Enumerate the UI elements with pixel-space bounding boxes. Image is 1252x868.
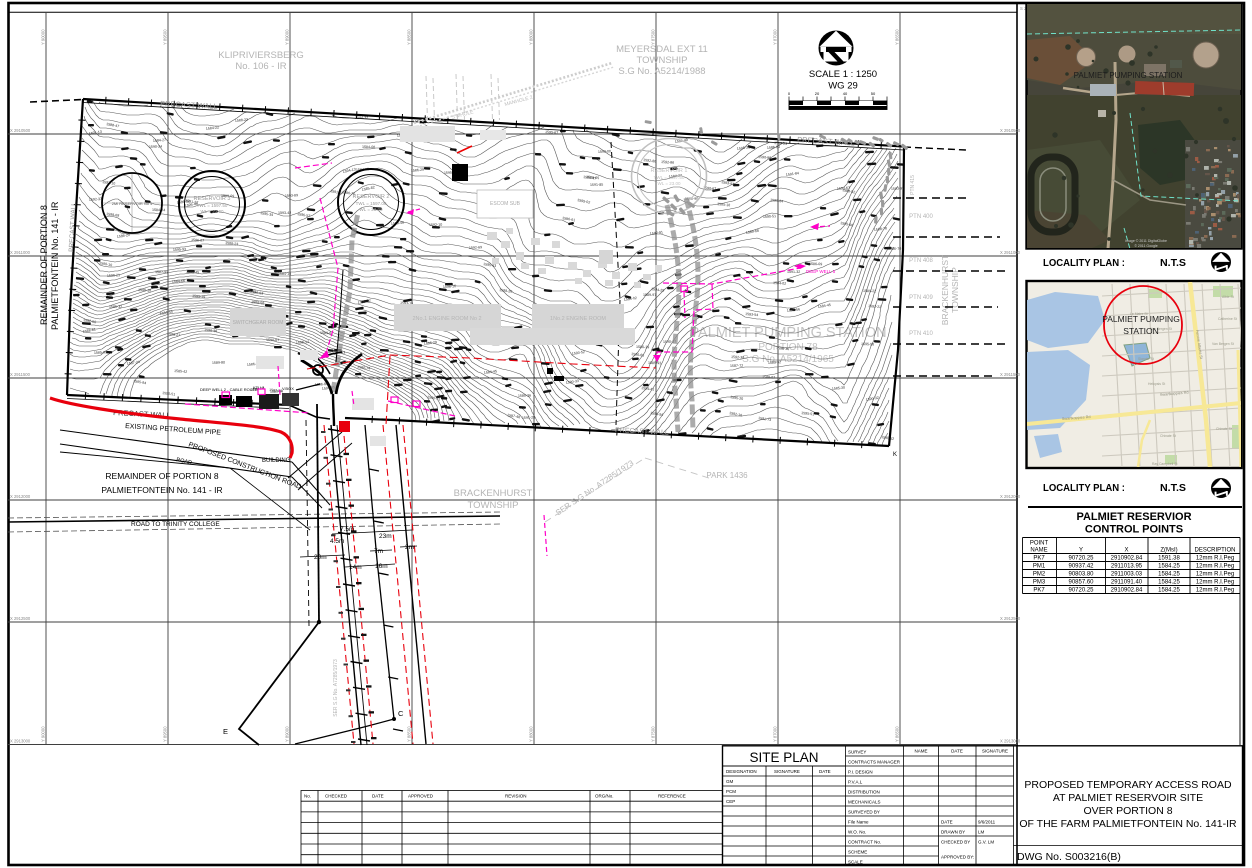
svg-text:SWITCHGEAR ROOM: SWITCHGEAR ROOM [233, 320, 284, 326]
svg-text:DATE: DATE [951, 749, 963, 754]
svg-text:N.T.S: N.T.S [1160, 257, 1186, 269]
svg-text:SIGNATURE: SIGNATURE [982, 749, 1008, 754]
svg-text:REMAINDER OF PORTION 8: REMAINDER OF PORTION 8 [39, 205, 49, 325]
svg-text:Y 90000: Y 90000 [41, 726, 46, 742]
svg-text:P.V.A.L: P.V.A.L [848, 780, 863, 785]
svg-text:1591.38: 1591.38 [1158, 556, 1180, 562]
svg-text:LOCALITY PLAN :: LOCALITY PLAN : [1043, 257, 1125, 269]
svg-text:No. 106 - IR: No. 106 - IR [235, 61, 286, 72]
svg-text:Y 87000: Y 87000 [773, 29, 778, 45]
svg-text:1584.25: 1584.25 [1158, 580, 1180, 586]
svg-text:Y 86500: Y 86500 [895, 29, 900, 45]
svg-text:PALMIETFONTEIN No. 141 - IR: PALMIETFONTEIN No. 141 - IR [50, 201, 60, 330]
svg-text:Y 90000: Y 90000 [41, 29, 46, 45]
svg-text:SER S.G No. A7285/1973: SER S.G No. A7285/1973 [333, 659, 339, 717]
svg-text:CHECKED BY: CHECKED BY [941, 840, 970, 845]
svg-text:X 2910500: X 2910500 [10, 128, 31, 133]
svg-text:1595-93: 1595-93 [173, 247, 186, 252]
svg-text:POINT: POINT [1030, 541, 1049, 547]
svg-text:Y 86500: Y 86500 [895, 726, 900, 742]
svg-text:E: E [223, 727, 228, 736]
svg-text:20m: 20m [314, 554, 327, 561]
svg-text:RESERVOIR 2: RESERVOIR 2 [353, 194, 390, 200]
svg-text:Z(MsI): Z(MsI) [1160, 548, 1177, 554]
svg-text:1592-30: 1592-30 [731, 355, 744, 360]
svg-text:X 2912000: X 2912000 [10, 494, 31, 499]
svg-text:Image © 2011 DigitalGlobe: Image © 2011 DigitalGlobe [1125, 239, 1167, 243]
svg-text:X 2912500: X 2912500 [10, 616, 31, 621]
svg-text:1589-80: 1589-80 [212, 361, 225, 365]
svg-text:X 2913000: X 2913000 [1000, 739, 1021, 744]
svg-text:1593-42: 1593-42 [278, 211, 291, 215]
svg-text:1593-97: 1593-97 [891, 187, 904, 191]
svg-text:PROPOSED TEMPORARY ACCESS ROAD: PROPOSED TEMPORARY ACCESS ROAD [1024, 779, 1232, 791]
svg-text:BUILDING: BUILDING [262, 458, 291, 464]
svg-text:PALMIET RESERVIOR: PALMIET RESERVIOR [1076, 511, 1191, 523]
svg-text:Albie St: Albie St [1222, 295, 1234, 299]
svg-text:TWL = 1597.50: TWL = 1597.50 [654, 175, 685, 180]
svg-text:X 2911000: X 2911000 [1000, 250, 1021, 255]
svg-text:1584-34: 1584-34 [152, 208, 165, 212]
svg-text:12mm R.I.Peg: 12mm R.I.Peg [1196, 588, 1234, 594]
svg-text:90720.25: 90720.25 [1068, 556, 1094, 562]
svg-text:TWL = 1597.50: TWL = 1597.50 [197, 203, 228, 208]
svg-text:1589-22: 1589-22 [863, 289, 876, 293]
svg-text:No.: No. [304, 794, 311, 799]
svg-text:1587-93: 1587-93 [155, 270, 168, 274]
svg-text:RESERVOIR 1: RESERVOIR 1 [651, 168, 688, 174]
svg-text:S.G No. A5214/1965: S.G No. A5214/1965 [742, 354, 834, 365]
svg-text:1592-10: 1592-10 [429, 223, 442, 227]
svg-text:DEEP WELL 2 - CABLE ROUTE: DEEP WELL 2 - CABLE ROUTE [200, 387, 258, 392]
svg-text:X 2910500: X 2910500 [1000, 128, 1021, 133]
svg-text:SCHEME: SCHEME [848, 850, 867, 855]
svg-text:1592-69: 1592-69 [469, 245, 482, 250]
svg-text:PTN 410: PTN 410 [909, 331, 933, 337]
svg-text:BRACKENHURST: BRACKENHURST [940, 255, 950, 325]
svg-text:WL = 23.00: WL = 23.00 [360, 207, 383, 212]
svg-text:12mm R.I.Peg: 12mm R.I.Peg [1196, 580, 1234, 586]
svg-text:TOWNSHIP: TOWNSHIP [467, 500, 518, 511]
svg-text:LM: LM [978, 830, 985, 835]
svg-text:23m: 23m [379, 533, 392, 540]
svg-text:DESCRIPTION: DESCRIPTION [1194, 548, 1235, 554]
svg-text:16m: 16m [375, 563, 388, 570]
svg-text:Helopsis St: Helopsis St [1148, 382, 1165, 386]
svg-text:90720.25: 90720.25 [1068, 588, 1094, 594]
svg-text:Y 87500: Y 87500 [651, 726, 656, 742]
svg-text:SIGNATURE: SIGNATURE [774, 769, 800, 774]
svg-text:Chinate St: Chinate St [1160, 434, 1176, 438]
svg-text:Y 87500: Y 87500 [651, 29, 656, 45]
svg-text:ORG/No.: ORG/No. [595, 794, 614, 799]
svg-text:2No.1 ENGINE ROOM No 2: 2No.1 ENGINE ROOM No 2 [412, 316, 481, 322]
svg-text:LOCALITY PLAN :: LOCALITY PLAN : [1043, 482, 1125, 494]
svg-text:12mm R.I.Peg: 12mm R.I.Peg [1196, 556, 1234, 562]
svg-text:P.I. DESIGN: P.I. DESIGN [848, 770, 873, 775]
svg-text:50: 50 [871, 91, 876, 96]
svg-text:OF THE FARM PALMIETFONTEIN No.: OF THE FARM PALMIETFONTEIN No. 141-IR [1019, 818, 1237, 830]
svg-text:RESERVOIR 3: RESERVOIR 3 [194, 196, 231, 202]
svg-text:90857.60: 90857.60 [1068, 580, 1094, 586]
svg-text:7m: 7m [374, 548, 383, 555]
svg-text:PM2: PM2 [1033, 572, 1046, 578]
svg-text:1584.25: 1584.25 [1158, 564, 1180, 570]
svg-text:PK7: PK7 [1033, 588, 1045, 594]
svg-text:G.V. LM: G.V. LM [978, 840, 994, 845]
svg-text:2910902.84: 2910902.84 [1111, 556, 1143, 562]
svg-text:N.T.S: N.T.S [1160, 482, 1186, 494]
svg-text:1588-07: 1588-07 [762, 375, 775, 380]
svg-text:1584.25: 1584.25 [1158, 572, 1180, 578]
svg-text:Y 88500: Y 88500 [407, 29, 412, 45]
svg-text:WG 29: WG 29 [828, 81, 858, 92]
svg-text:90937.42: 90937.42 [1068, 564, 1094, 570]
svg-text:1586-09: 1586-09 [809, 262, 822, 266]
svg-text:12mm R.I.Peg: 12mm R.I.Peg [1196, 564, 1234, 570]
svg-text:DESIGNATION: DESIGNATION [726, 769, 757, 774]
svg-text:1591-85: 1591-85 [590, 183, 603, 187]
svg-text:1584.25: 1584.25 [1158, 588, 1180, 594]
svg-text:DEEP WELL 5: DEEP WELL 5 [806, 269, 836, 274]
svg-text:KLIPRIVIERSBERG: KLIPRIVIERSBERG [218, 50, 304, 61]
svg-text:Y 89000: Y 89000 [285, 29, 290, 45]
svg-text:File Name: File Name [848, 820, 869, 825]
svg-text:PTN 408: PTN 408 [909, 258, 933, 264]
svg-text:20: 20 [815, 91, 820, 96]
svg-text:ROAD TO TRINITY COLLEGE: ROAD TO TRINITY COLLEGE [131, 521, 220, 528]
svg-text:TOWNSHIP: TOWNSHIP [950, 267, 960, 313]
svg-text:1585-32: 1585-32 [109, 305, 122, 309]
svg-text:1591-25: 1591-25 [522, 416, 535, 420]
svg-text:4.5m: 4.5m [330, 538, 344, 545]
svg-text:1586-70: 1586-70 [888, 247, 901, 251]
svg-text:2910902.84: 2910902.84 [1111, 588, 1143, 594]
svg-text:W.O. No.: W.O. No. [848, 830, 866, 835]
svg-text:DISTRIBUTION: DISTRIBUTION [848, 790, 880, 795]
svg-text:SCALE 1 : 1250: SCALE 1 : 1250 [809, 69, 877, 80]
svg-text:Y 88500: Y 88500 [407, 726, 412, 742]
svg-text:2Ml RESERVOIR No 4: 2Ml RESERVOIR No 4 [112, 201, 153, 206]
svg-text:PCM: PCM [726, 789, 736, 794]
svg-text:CONTRACTS MANAGER: CONTRACTS MANAGER [848, 760, 901, 765]
svg-text:12mm R.I.Peg: 12mm R.I.Peg [1196, 572, 1234, 578]
svg-text:PTN 400: PTN 400 [909, 214, 933, 220]
svg-text:CONTRACT No.: CONTRACT No. [848, 840, 881, 845]
svg-text:WL = 23.00: WL = 23.00 [658, 181, 681, 186]
svg-text:PALMIET PUMPING STATION: PALMIET PUMPING STATION [1074, 71, 1183, 80]
svg-text:1586-19: 1586-19 [636, 345, 649, 349]
svg-text:X 2911500: X 2911500 [1000, 372, 1021, 377]
svg-text:1No.2 ENGINE ROOM: 1No.2 ENGINE ROOM [550, 316, 606, 322]
svg-text:DATE: DATE [372, 794, 384, 799]
svg-text:TWL = 1597.00: TWL = 1597.00 [356, 201, 387, 206]
svg-text:14m: 14m [349, 564, 362, 571]
svg-text:WL = 23.00: WL = 23.00 [201, 209, 224, 214]
svg-text:1584-16: 1584-16 [278, 272, 291, 276]
svg-text:ESCOM SUB: ESCOM SUB [490, 201, 521, 207]
svg-text:PARK 1436: PARK 1436 [706, 471, 748, 480]
svg-text:Van Bergen St: Van Bergen St [1212, 342, 1234, 346]
svg-text:V.BOX: V.BOX [282, 386, 294, 391]
svg-text:Y 87000: Y 87000 [773, 726, 778, 742]
svg-text:1596-18: 1596-18 [138, 288, 151, 292]
svg-text:9/6/2011: 9/6/2011 [978, 820, 996, 825]
svg-text:1585-93: 1585-93 [648, 361, 661, 365]
svg-text:X 2913000: X 2913000 [10, 739, 31, 744]
svg-text:X 2912500: X 2912500 [1000, 616, 1021, 621]
svg-text:DRAWN BY: DRAWN BY [941, 830, 965, 835]
svg-text:Y: Y [1079, 548, 1083, 554]
svg-text:7.5m: 7.5m [340, 526, 354, 533]
svg-text:CONTROL POINTS: CONTROL POINTS [1085, 524, 1183, 536]
svg-text:DATE: DATE [819, 769, 831, 774]
svg-text:SURVEYED BY: SURVEYED BY [848, 810, 880, 815]
svg-text:1593-89: 1593-89 [285, 193, 298, 198]
svg-text:1585-36: 1585-36 [518, 394, 531, 398]
svg-text:MECHANICALS: MECHANICALS [848, 800, 881, 805]
svg-text:CEP: CEP [726, 799, 735, 804]
svg-text:PALMIETFONTEIN No. 141 - IR: PALMIETFONTEIN No. 141 - IR [101, 485, 222, 495]
svg-text:90803.80: 90803.80 [1068, 572, 1094, 578]
svg-text:1587-72: 1587-72 [730, 364, 743, 368]
svg-text:SURVEY: SURVEY [848, 750, 866, 755]
svg-text:S.G No. A5214/1988: S.G No. A5214/1988 [618, 66, 705, 77]
svg-text:STATION: STATION [1123, 326, 1159, 336]
svg-text:PM1: PM1 [1033, 564, 1046, 570]
svg-text:1585-99: 1585-99 [94, 350, 107, 355]
svg-text:PK7: PK7 [1033, 556, 1045, 562]
svg-text:1584-02: 1584-02 [773, 281, 786, 286]
svg-text:REMAINDER OF PORTION 8: REMAINDER OF PORTION 8 [105, 471, 218, 481]
svg-text:Y 88000: Y 88000 [529, 726, 534, 742]
svg-text:REFERENCE: REFERENCE [658, 794, 686, 799]
svg-text:DWG No. S003216(B): DWG No. S003216(B) [1017, 851, 1121, 863]
svg-text:Y 89500: Y 89500 [163, 29, 168, 45]
svg-text:1595-56: 1595-56 [861, 342, 874, 346]
svg-text:Slander St: Slander St [1138, 357, 1154, 361]
svg-text:K: K [893, 452, 897, 458]
svg-text:OVER PORTION 8: OVER PORTION 8 [1083, 805, 1172, 817]
svg-text:APPROVED: APPROVED [408, 794, 434, 799]
svg-text:SCALE: SCALE [848, 860, 863, 865]
svg-text:PTN 415: PTN 415 [910, 175, 916, 195]
svg-text:X 2912000: X 2912000 [1000, 494, 1021, 499]
svg-text:C: C [398, 709, 404, 718]
svg-text:MEYERSDAL EXT 11: MEYERSDAL EXT 11 [616, 44, 708, 55]
svg-text:1596-07: 1596-07 [191, 238, 204, 243]
svg-text:TOWNSHIP: TOWNSHIP [636, 55, 687, 66]
svg-text:PM3: PM3 [1033, 580, 1046, 586]
svg-text:DATE: DATE [941, 820, 953, 825]
svg-text:SITE PLAN: SITE PLAN [749, 750, 818, 765]
svg-text:Catherine St: Catherine St [1218, 317, 1237, 321]
svg-text:2911003.03: 2911003.03 [1111, 572, 1143, 578]
svg-text:1590-67: 1590-67 [266, 338, 279, 342]
svg-text:© 2011 Google: © 2011 Google [1134, 244, 1157, 248]
svg-text:2911013.95: 2911013.95 [1111, 564, 1143, 570]
svg-text:GM: GM [726, 779, 734, 784]
svg-text:REVISION: REVISION [505, 794, 527, 799]
svg-text:AT PALMIET RESERVOIR SITE: AT PALMIET RESERVOIR SITE [1053, 792, 1203, 804]
svg-text:Y 88000: Y 88000 [529, 29, 534, 45]
svg-text:1593-00: 1593-00 [598, 149, 611, 154]
svg-text:CHECKED: CHECKED [325, 794, 348, 799]
svg-text:PALMIET PUMPING: PALMIET PUMPING [1102, 314, 1180, 324]
svg-text:Chinate St: Chinate St [1216, 427, 1232, 431]
svg-text:Y 89000: Y 89000 [285, 726, 290, 742]
svg-text:2911091.40: 2911091.40 [1111, 580, 1143, 586]
svg-text:1589-97: 1589-97 [643, 293, 656, 297]
svg-text:NAME: NAME [1030, 548, 1047, 554]
svg-text:X: X [1124, 548, 1128, 554]
svg-text:1592-86: 1592-86 [661, 160, 674, 165]
svg-text:40: 40 [843, 91, 848, 96]
svg-text:BRACKENHURST: BRACKENHURST [454, 488, 533, 499]
svg-text:APPROVED BY:: APPROVED BY: [941, 855, 974, 860]
svg-text:Y 89500: Y 89500 [163, 726, 168, 742]
svg-text:2m: 2m [405, 544, 414, 551]
svg-text:X 2911000: X 2911000 [10, 250, 31, 255]
svg-text:1590-24: 1590-24 [149, 145, 162, 149]
svg-text:PTN 409: PTN 409 [909, 295, 933, 301]
svg-text:NAME: NAME [914, 749, 927, 754]
svg-text:Ray Campbell St: Ray Campbell St [1152, 462, 1177, 466]
svg-text:1584-08: 1584-08 [362, 145, 375, 149]
svg-text:1593-45: 1593-45 [186, 270, 199, 274]
svg-text:X 2911500: X 2911500 [10, 372, 31, 377]
